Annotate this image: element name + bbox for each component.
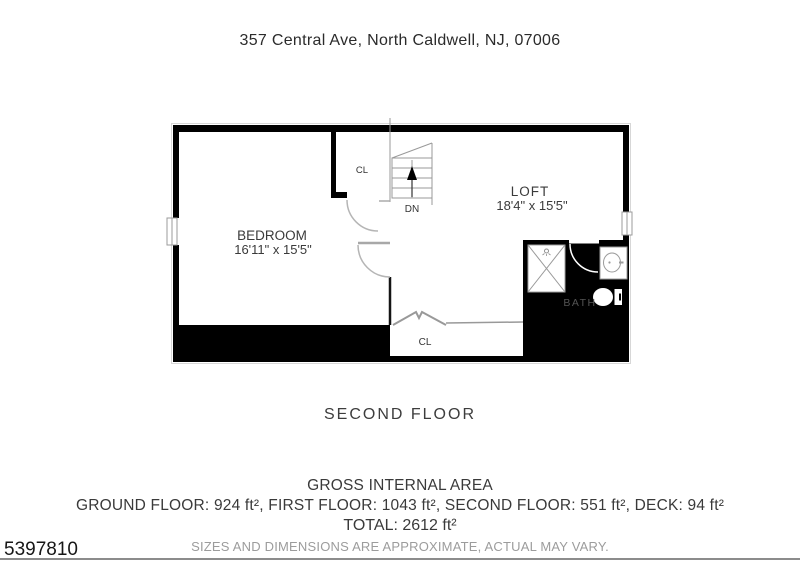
sink-icon: [600, 247, 627, 279]
area-summary-breakdown: GROUND FLOOR: 924 ft², FIRST FLOOR: 1043…: [0, 496, 800, 515]
bedroom-label: BEDROOM: [237, 228, 307, 243]
bath-door-opening: [569, 240, 599, 244]
stairs-down-label: DN: [405, 204, 419, 215]
toilet-icon: [593, 288, 622, 306]
bifold-closet-doors: [393, 312, 523, 325]
closet-bottom-label: CL: [419, 337, 432, 348]
floor-plan-page: 357 Central Ave, North Caldwell, NJ, 070…: [0, 0, 800, 565]
bath-label: BATH: [563, 297, 596, 309]
area-summary-disclaimer: SIZES AND DIMENSIONS ARE APPROXIMATE, AC…: [0, 539, 800, 555]
bedroom-door-arc: [358, 245, 390, 277]
area-summary-heading: GROSS INTERNAL AREA: [0, 476, 800, 496]
loft-dimensions: 18'4" x 15'5": [496, 198, 568, 213]
area-summary-total: TOTAL: 2612 ft²: [0, 516, 800, 535]
bedroom-south-solid-wall: [173, 325, 390, 362]
closet-door-arc: [347, 200, 378, 231]
closet-wall: [331, 127, 347, 198]
area-summary: GROSS INTERNAL AREA GROUND FLOOR: 924 ft…: [0, 476, 800, 555]
floor-name-label: SECOND FLOOR: [0, 406, 800, 424]
shower-icon: [528, 245, 565, 292]
window-right: [622, 212, 632, 235]
bottom-divider-line: [0, 558, 800, 560]
bedroom-dimensions: 16'11" x 15'5": [234, 242, 312, 257]
closet-top-label: CL: [356, 165, 368, 176]
window-left: [167, 218, 177, 245]
loft-label: LOFT: [511, 184, 550, 199]
